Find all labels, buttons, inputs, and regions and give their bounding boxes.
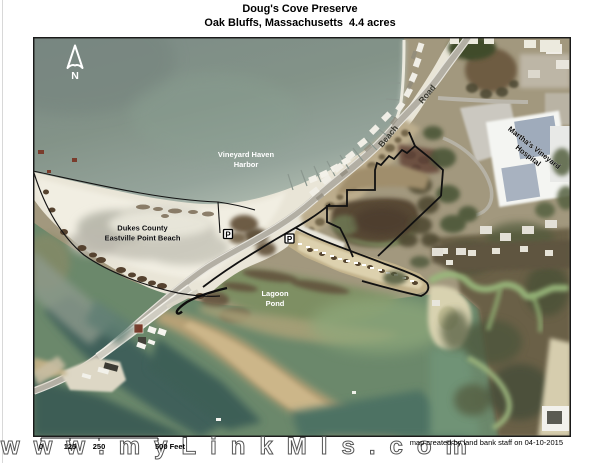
- svg-text:P: P: [225, 230, 231, 239]
- svg-text:Dukes County: Dukes County: [117, 224, 168, 233]
- svg-text:125: 125: [64, 442, 77, 451]
- svg-text:0: 0: [39, 442, 43, 451]
- svg-text:Eastville Point Beach: Eastville Point Beach: [105, 234, 181, 243]
- svg-text:Vineyard Haven: Vineyard Haven: [218, 150, 275, 159]
- svg-text:P: P: [287, 235, 293, 244]
- svg-text:Pond: Pond: [266, 299, 285, 308]
- svg-text:N: N: [71, 70, 79, 82]
- svg-text:Lagoon: Lagoon: [261, 289, 288, 298]
- svg-text:250: 250: [93, 442, 106, 451]
- svg-text:500 Feet: 500 Feet: [155, 442, 186, 451]
- svg-text:Harbor: Harbor: [234, 160, 259, 169]
